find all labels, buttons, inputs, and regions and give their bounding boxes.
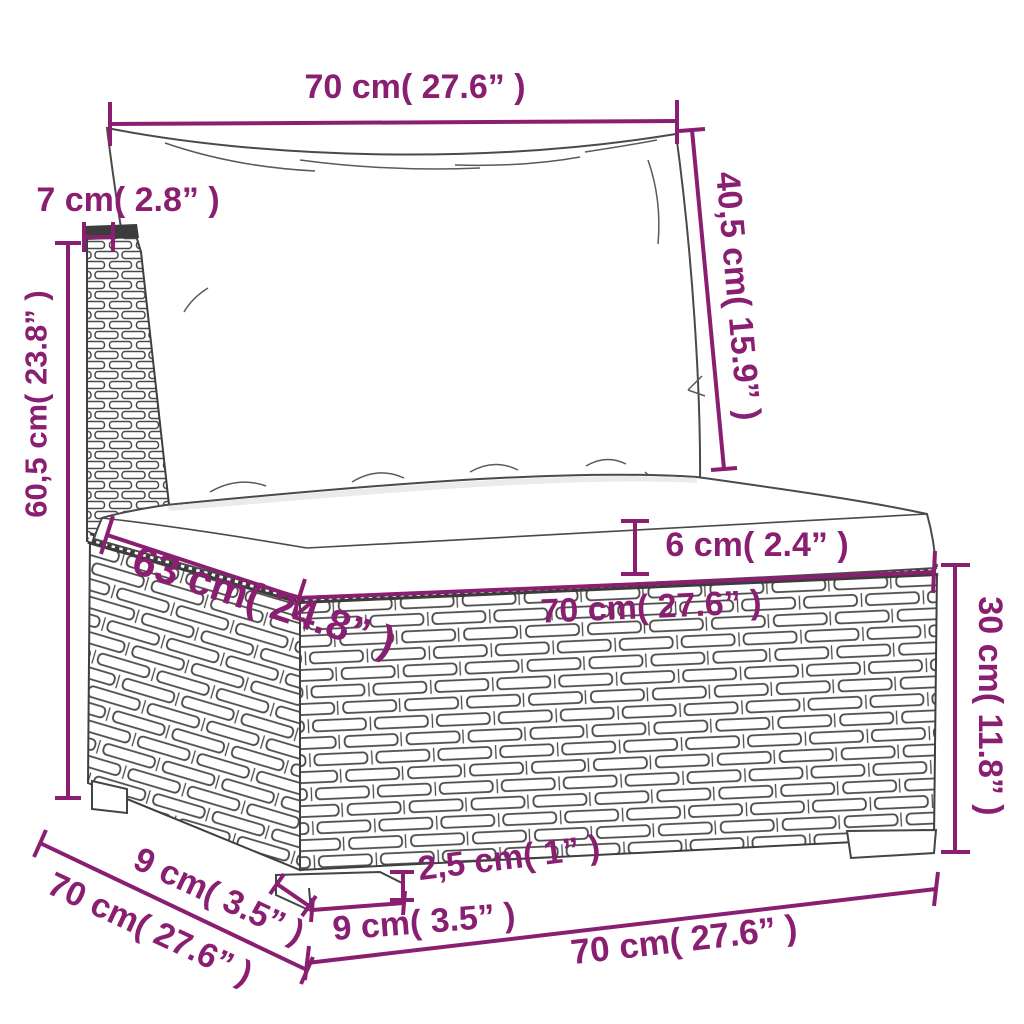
- dim-label-base-height: 30 cm( 11.8” ): [973, 596, 1007, 815]
- dim-total-height-line: [55, 243, 81, 798]
- dim-base-height-line: [941, 565, 970, 852]
- dim-label-cushion-width: 70 cm( 27.6” ): [304, 70, 525, 104]
- dim-label-back-thickness: 7 cm( 2.8” ): [36, 183, 219, 217]
- front-right-leg: [847, 830, 936, 858]
- dimension-diagram: 70 cm( 27.6” ) 7 cm( 2.8” ) 40,5 cm( 15.…: [0, 0, 1024, 1024]
- dim-label-total-height: 60,5 cm( 23.8” ): [21, 290, 52, 517]
- dim-label-seat-thickness: 6 cm( 2.4” ): [665, 528, 848, 562]
- dim-label-seat-width: 70 cm( 27.6” ): [540, 585, 762, 629]
- dim-cushion-width-line: [110, 100, 677, 146]
